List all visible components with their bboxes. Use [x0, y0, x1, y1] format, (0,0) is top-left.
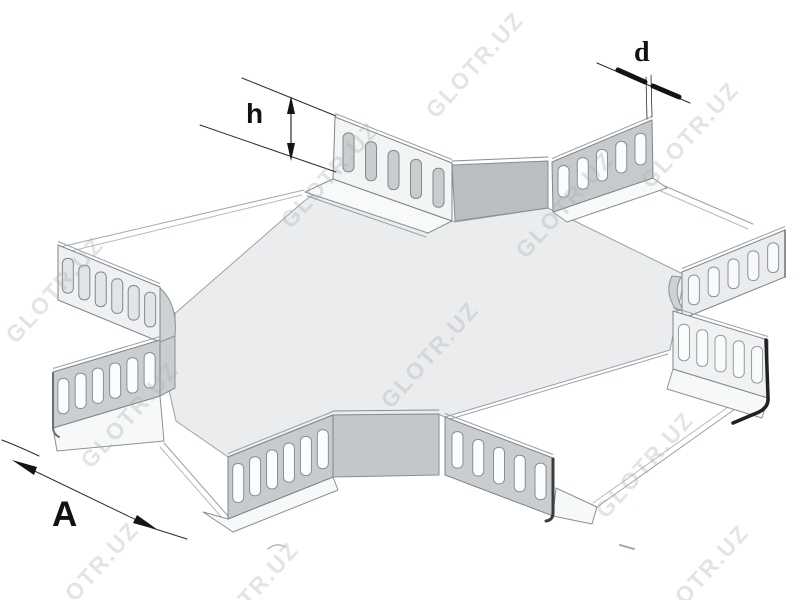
wall-south-far-slot	[452, 432, 463, 469]
wall-east-top-slot	[728, 259, 739, 289]
corner-fold-sw-inner	[160, 447, 224, 520]
wall-west-near-slot	[127, 358, 138, 393]
wall-south-far-slot	[535, 463, 546, 500]
wall-north-left-slot	[433, 168, 444, 207]
stray-dash	[620, 545, 634, 549]
wall-west-near-slot	[110, 363, 121, 398]
dim-h-ext-bottom	[200, 125, 336, 172]
dim-a-arrow-right	[133, 515, 158, 530]
dim-a-ext-top	[2, 440, 39, 456]
stray-arc	[268, 545, 285, 549]
wall-west-far-slot	[62, 258, 73, 293]
wall-north-right-slot	[597, 150, 608, 182]
dim-d-arrow-left	[618, 70, 645, 82]
wall-north-right-slot	[577, 158, 588, 190]
wall-east-near-slot	[733, 341, 744, 378]
wall-west-far-slot	[128, 286, 139, 321]
wall-south-near-slot	[300, 436, 311, 475]
corner-fold-ne-inner	[649, 186, 748, 229]
wall-east-top-slot	[688, 275, 699, 305]
wall-west-far-slot	[79, 265, 90, 300]
wall-west-far	[58, 245, 160, 342]
dim-d-ext-right	[651, 75, 652, 117]
cross-tray-drawing	[0, 0, 800, 600]
corner-fold-sw-outer	[164, 443, 228, 516]
wall-north-right-slot	[616, 141, 627, 173]
wall-west-far-slot	[112, 279, 123, 314]
wall-south-near-slot	[283, 443, 294, 482]
corner-bend-nw	[160, 288, 175, 342]
wall-south-near-slot	[233, 463, 244, 502]
dim-h-arrow-down	[287, 143, 295, 161]
wall-west-near-slot	[92, 368, 103, 403]
end-panel-north-lip	[452, 157, 548, 161]
wall-south-far-slot	[494, 447, 505, 484]
wall-east-near-slot	[697, 330, 708, 367]
dim-a-line	[16, 462, 155, 529]
wall-east-top-slot	[748, 251, 759, 281]
foot-south-far	[553, 488, 597, 524]
wall-south-far-slot	[473, 439, 484, 476]
diagram-canvas: GLOTR.UZGLOTR.UZGLOTR.UZGLOTR.UZGLOTR.UZ…	[0, 0, 800, 600]
wall-north-left-slot	[388, 151, 399, 190]
wall-south-near-slot	[267, 450, 278, 489]
corner-fold-ne-outer	[653, 181, 753, 224]
wall-east-near-slot	[715, 335, 726, 372]
wall-north-right-slot	[635, 133, 646, 165]
wall-west-near-slot	[144, 353, 155, 388]
dimension-label-A: A	[52, 495, 77, 535]
dim-d-arrow-right	[653, 86, 679, 97]
wall-west-near-slot	[75, 373, 86, 408]
wall-south-near-slot	[250, 457, 261, 496]
dim-a-arrow-left	[12, 460, 37, 475]
dim-a-ext-bottom	[149, 527, 187, 539]
dimension-label-h: h	[246, 98, 263, 130]
wall-east-near-slot	[678, 324, 689, 361]
wall-east-near-slot	[752, 347, 763, 384]
wall-west-far-slot	[95, 272, 106, 307]
end-panel-south	[333, 414, 439, 477]
wall-west-far-slot	[145, 292, 156, 327]
wall-north-right-slot	[558, 166, 569, 198]
wall-south-near-slot	[317, 430, 328, 469]
wall-north-left-slot	[411, 159, 422, 198]
wall-west-near-slot	[58, 378, 69, 413]
wall-south-far-slot	[514, 455, 525, 492]
corner-fold-se-inner	[593, 405, 731, 503]
wall-east-top-slot	[768, 243, 779, 273]
wall-north-left-slot	[343, 133, 354, 172]
wall-east-top-slot	[708, 267, 719, 297]
corner-fold-se-outer	[597, 409, 735, 507]
dimension-label-d: d	[634, 37, 650, 69]
wall-north-left-slot	[366, 142, 377, 181]
